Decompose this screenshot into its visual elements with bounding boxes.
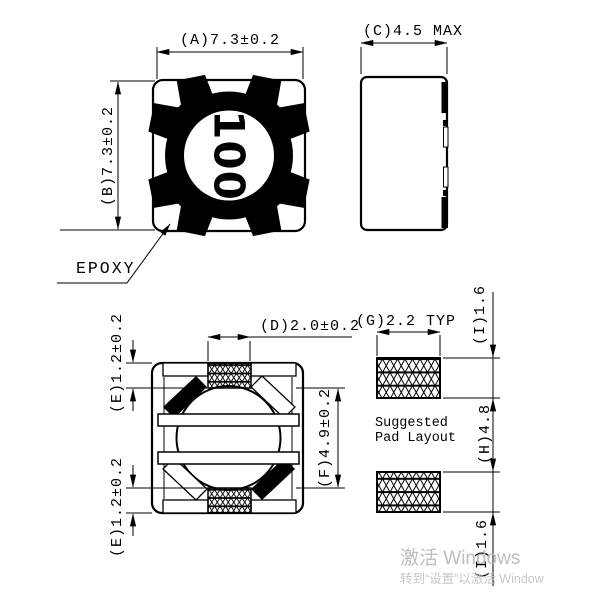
watermark-line1: 激活 Windows [400,547,520,569]
dim-a-label: (A)7.3±0.2 [180,32,280,49]
dim-d-label: (D)2.0±0.2 [260,318,360,335]
epoxy-label: EPOXY [76,259,136,278]
dim-i-top-label: (I)1.6 [472,285,489,345]
dim-f-label: (F)4.9±0.2 [317,388,334,488]
dim-g-label: (G)2.2 TYP [356,313,456,330]
dim-e-bottom-label: (E)1.2±0.2 [109,457,126,557]
electrode-pad-bottom [208,488,251,513]
pad-top [377,358,440,398]
dimension-d: (D)2.0±0.2 [208,318,360,361]
part-marking: 100 [205,110,254,201]
watermark-line2: 转到“设置”以激活 Window [400,571,545,586]
terminal-bar-top [442,82,449,113]
dim-h-label: (H)4.8 [477,404,494,464]
side-view: (C)4.5 MAX [361,23,463,230]
epoxy-callout: EPOXY [57,224,170,283]
dim-e-top-label: (E)1.2±0.2 [109,313,126,413]
technical-drawing: 100 (A)7.3±0.2 (B)7.3±0.2 EPOXY [0,0,600,600]
windows-activation-watermark: 激活 Windows 转到“设置”以激活 Window [400,547,545,586]
lead-bar-upper [158,414,299,426]
dimension-b: (B)7.3±0.2 [60,81,155,230]
top-view: 100 (A)7.3±0.2 (B)7.3±0.2 EPOXY [57,32,321,283]
dim-c-label: (C)4.5 MAX [363,23,463,40]
electrode-pad-top [208,363,251,388]
side-view-body-outline [361,77,447,230]
pad-layout-caption: Suggested Pad Layout [375,416,456,446]
bottom-view: (D)2.0±0.2 (E)1.2±0.2 (E)1.2±0.2 (F)4.9±… [109,313,360,557]
caption-line2: Pad Layout [375,431,456,446]
lead-bar-lower [158,452,299,464]
dimension-a: (A)7.3±0.2 [157,32,303,79]
dim-b-label: (B)7.3±0.2 [100,106,117,206]
pad-bottom [377,472,440,512]
pad-layout: (G)2.2 TYP (I)1.6 (H)4.8 (I)1.6 Suggeste… [356,285,500,586]
caption-line1: Suggested [375,416,448,431]
dimension-c: (C)4.5 MAX [361,23,463,74]
dimension-g: (G)2.2 TYP [356,313,456,356]
terminal-bar-bottom [442,197,449,228]
